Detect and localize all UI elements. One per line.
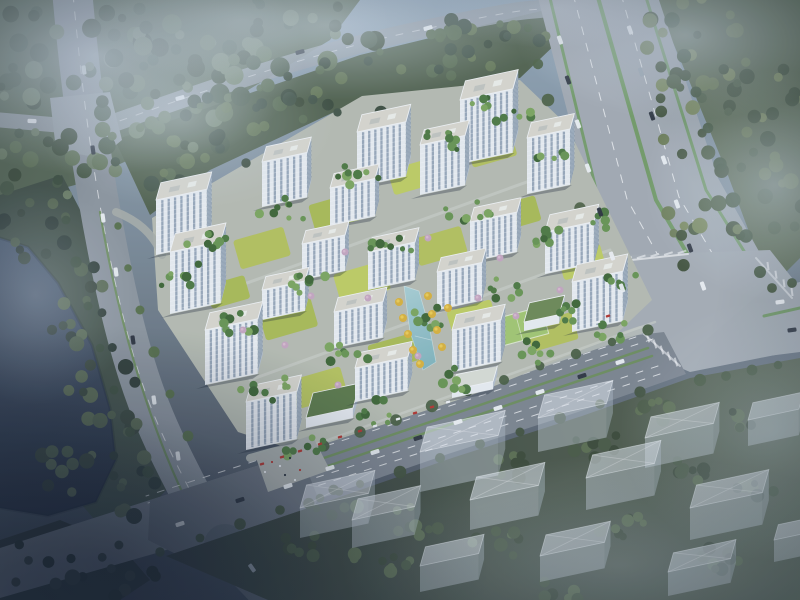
aerial-architectural-rendering (0, 0, 800, 600)
atmosphere (0, 0, 800, 600)
scene-svg (0, 0, 800, 600)
cool-tint (0, 0, 800, 600)
